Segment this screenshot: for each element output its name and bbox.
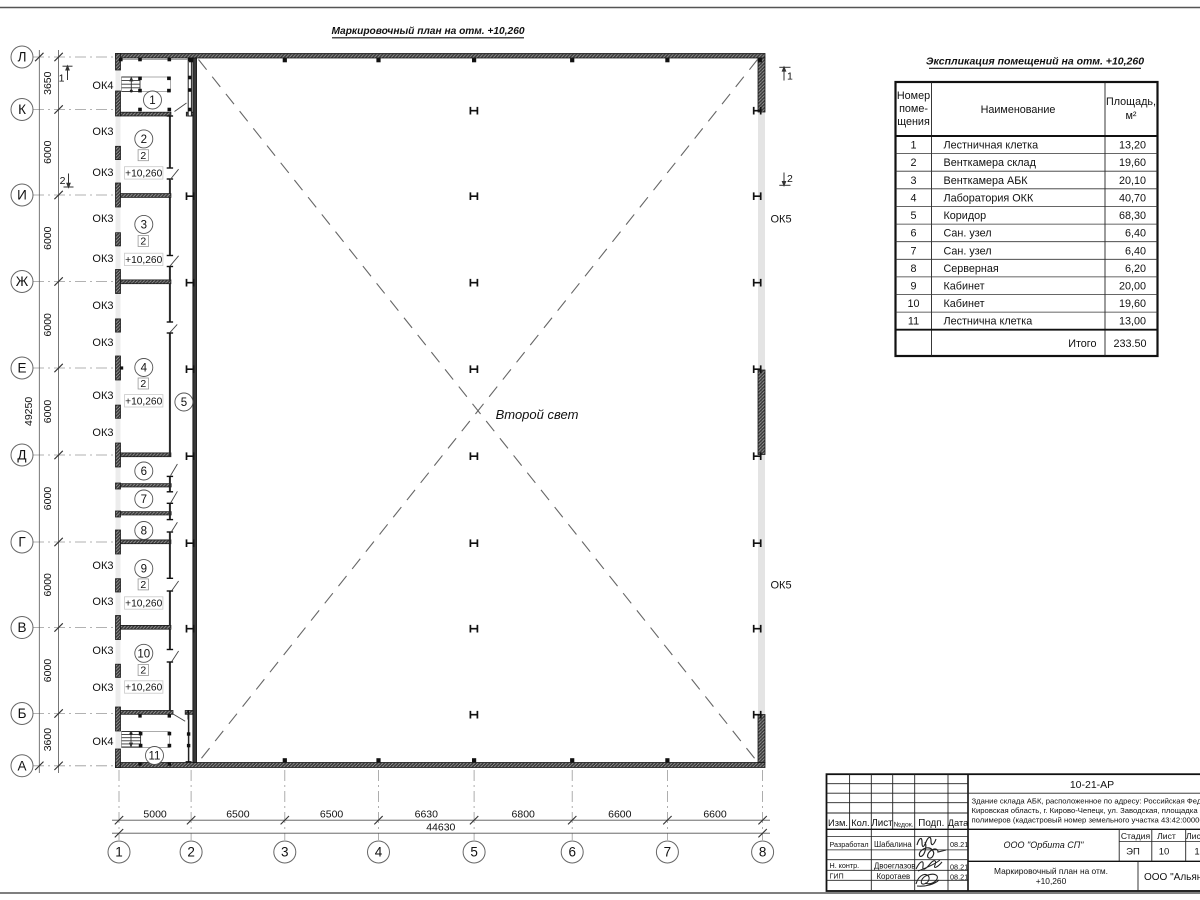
svg-text:Сан. узел: Сан. узел [944,245,992,257]
svg-text:6800: 6800 [512,808,536,820]
svg-text:13,20: 13,20 [1119,140,1146,152]
svg-text:Е: Е [17,361,26,376]
svg-text:20,00: 20,00 [1119,281,1146,293]
svg-text:40,70: 40,70 [1119,192,1146,204]
svg-text:+10,260: +10,260 [125,683,162,694]
svg-text:6000: 6000 [42,140,54,164]
svg-text:+10,260: +10,260 [1036,876,1067,886]
svg-text:Разработал: Разработал [830,840,869,849]
svg-text:68,30: 68,30 [1119,210,1146,222]
svg-text:6630: 6630 [415,808,439,820]
svg-text:6,40: 6,40 [1125,245,1146,257]
svg-text:1: 1 [910,140,916,152]
svg-text:ОК3: ОК3 [92,427,113,439]
svg-text:Подп.: Подп. [918,818,944,829]
svg-text:Лист: Лист [1157,831,1176,841]
svg-text:2: 2 [140,665,146,677]
svg-text:44630: 44630 [426,822,455,834]
svg-text:Кировская область, г. Кирово-Ч: Кировская область, г. Кирово-Чепецк, ул.… [972,806,1200,815]
svg-text:3650: 3650 [42,71,54,95]
svg-text:ОК4: ОК4 [92,736,113,748]
svg-text:Стадия: Стадия [1121,831,1151,841]
svg-text:Маркировочный план на отм.: Маркировочный план на отм. [994,866,1108,876]
svg-text:4: 4 [375,845,383,860]
svg-text:полимеров (кадастровый номер з: полимеров (кадастровый номер земельного … [972,816,1200,825]
svg-text:+10,260: +10,260 [125,396,162,407]
svg-text:Серверная: Серверная [944,263,999,275]
svg-text:В: В [17,620,26,635]
svg-text:ОК3: ОК3 [92,300,113,312]
svg-text:Итого: Итого [1068,338,1096,350]
svg-text:ОК3: ОК3 [92,645,113,657]
svg-text:2: 2 [140,378,146,390]
svg-text:6,40: 6,40 [1125,228,1146,240]
svg-text:10: 10 [907,298,919,310]
svg-text:6500: 6500 [320,808,344,820]
svg-text:Номер: Номер [897,90,930,102]
svg-text:Б: Б [18,706,27,721]
svg-text:9: 9 [910,281,916,293]
svg-text:1: 1 [149,95,155,107]
svg-text:ООО "Орбита СП": ООО "Орбита СП" [1004,840,1085,850]
svg-text:6,20: 6,20 [1125,263,1146,275]
svg-text:10: 10 [137,648,150,660]
svg-text:К: К [18,102,26,117]
svg-text:Н. контр.: Н. контр. [830,861,860,870]
svg-text:2: 2 [60,175,66,187]
svg-text:6: 6 [568,845,576,860]
svg-text:И: И [17,188,27,203]
svg-text:Кабинет: Кабинет [944,281,985,293]
svg-text:08.21: 08.21 [950,873,968,882]
svg-text:Лист: Лист [871,818,893,829]
svg-text:5: 5 [181,397,187,409]
svg-text:2: 2 [910,157,916,169]
svg-text:7: 7 [910,245,916,257]
svg-text:Л: Л [18,50,27,65]
svg-text:Двоеглазов: Двоеглазов [874,861,915,870]
svg-text:2: 2 [141,134,147,146]
svg-text:13,00: 13,00 [1119,316,1146,328]
svg-text:6500: 6500 [226,808,250,820]
svg-text:Дата: Дата [948,818,969,828]
svg-text:6000: 6000 [42,573,54,597]
svg-text:6000: 6000 [42,226,54,250]
svg-text:6: 6 [910,228,916,240]
svg-text:Коридор: Коридор [944,210,987,222]
svg-text:+10,260: +10,260 [125,255,162,266]
svg-text:ОК3: ОК3 [92,390,113,402]
svg-text:+10,260: +10,260 [125,169,162,180]
svg-text:233.50: 233.50 [1113,338,1146,350]
svg-text:Лаборатория ОКК: Лаборатория ОКК [944,192,1034,204]
svg-text:5000: 5000 [143,808,167,820]
svg-text:ЭП: ЭП [1126,847,1140,858]
svg-text:ОК3: ОК3 [92,596,113,608]
svg-text:Второй свет: Второй свет [496,407,579,422]
svg-text:9: 9 [141,564,147,576]
svg-text:ГИП: ГИП [830,872,844,881]
svg-text:Наименование: Наименование [981,104,1056,116]
svg-text:6000: 6000 [42,659,54,683]
svg-text:1: 1 [115,845,123,860]
svg-text:2: 2 [140,236,146,248]
svg-text:11: 11 [149,751,161,763]
svg-text:6: 6 [141,466,147,478]
svg-text:Венткамера АБК: Венткамера АБК [944,175,1029,187]
svg-text:8: 8 [910,263,916,275]
svg-text:Листов: Листов [1186,831,1200,841]
svg-text:ОК5: ОК5 [771,214,792,226]
svg-text:2: 2 [187,845,195,860]
svg-text:Экспликация помещений на отм.: Экспликация помещений на отм. +10,260 [926,56,1144,68]
svg-text:6000: 6000 [42,487,54,511]
svg-text:ОК3: ОК3 [92,167,113,179]
svg-text:10-21-АР: 10-21-АР [1070,779,1114,791]
svg-text:7: 7 [664,845,672,860]
svg-text:Сан. узел: Сан. узел [944,228,992,240]
svg-text:2: 2 [787,173,793,185]
svg-text:2: 2 [140,579,146,591]
svg-text:Г: Г [18,535,26,550]
svg-text:19,60: 19,60 [1119,157,1146,169]
svg-text:10: 10 [1159,847,1170,858]
svg-text:5: 5 [910,210,916,222]
svg-text:Здание склада АБК, расположенн: Здание склада АБК, расположенное по адре… [972,797,1200,806]
svg-text:08.21: 08.21 [950,862,968,871]
svg-text:Кабинет: Кабинет [944,298,985,310]
svg-text:ОК3: ОК3 [92,253,113,265]
svg-text:3: 3 [910,175,916,187]
svg-text:ОК4: ОК4 [92,80,113,92]
svg-text:+10,260: +10,260 [125,599,162,610]
svg-text:ОК3: ОК3 [92,126,113,138]
svg-text:Венткамера склад: Венткамера склад [944,157,1037,169]
svg-text:1: 1 [787,71,793,83]
svg-text:3600: 3600 [42,728,54,752]
svg-text:3: 3 [281,845,289,860]
svg-text:1: 1 [1194,847,1199,858]
svg-text:щения: щения [897,116,930,128]
svg-text:ОК3: ОК3 [92,213,113,225]
svg-text:ОК3: ОК3 [92,560,113,572]
svg-text:11: 11 [908,316,919,328]
svg-text:6000: 6000 [42,313,54,337]
svg-text:Лестнична клетка: Лестнична клетка [944,316,1033,328]
svg-text:3: 3 [141,220,147,232]
svg-text:А: А [17,758,26,773]
svg-text:ОК3: ОК3 [92,682,113,694]
svg-text:Д: Д [17,448,26,463]
svg-text:Площадь,: Площадь, [1106,96,1156,108]
svg-text:8: 8 [759,845,767,860]
svg-text:7: 7 [141,494,147,506]
svg-text:ООО "Альянс: ООО "Альянс [1144,872,1200,883]
svg-text:6600: 6600 [608,808,632,820]
svg-text:6600: 6600 [703,808,727,820]
svg-text:20,10: 20,10 [1119,175,1146,187]
svg-text:поме-: поме- [899,103,928,115]
svg-text:1: 1 [59,73,65,85]
svg-text:Изм.: Изм. [828,818,848,828]
svg-text:08.21: 08.21 [950,840,968,849]
svg-text:19,60: 19,60 [1119,298,1146,310]
svg-text:Лестничная клетка: Лестничная клетка [944,140,1039,152]
svg-text:6000: 6000 [42,400,54,424]
svg-text:4: 4 [910,192,916,204]
svg-text:№док.: №док. [894,822,914,829]
svg-text:Маркировочный план на отм. +10: Маркировочный план на отм. +10,260 [331,26,524,37]
svg-text:Шабалина: Шабалина [874,840,912,849]
svg-text:5: 5 [470,845,478,860]
svg-text:ОК5: ОК5 [771,580,792,592]
svg-text:Кол.: Кол. [851,818,869,828]
svg-text:49250: 49250 [23,397,35,426]
svg-text:4: 4 [141,363,148,375]
svg-text:Ж: Ж [16,274,29,289]
svg-text:8: 8 [141,526,147,538]
svg-text:м²: м² [1125,110,1136,122]
svg-text:Коротаев: Коротаев [877,872,911,881]
svg-text:2: 2 [140,150,146,162]
svg-text:ОК3: ОК3 [92,337,113,349]
